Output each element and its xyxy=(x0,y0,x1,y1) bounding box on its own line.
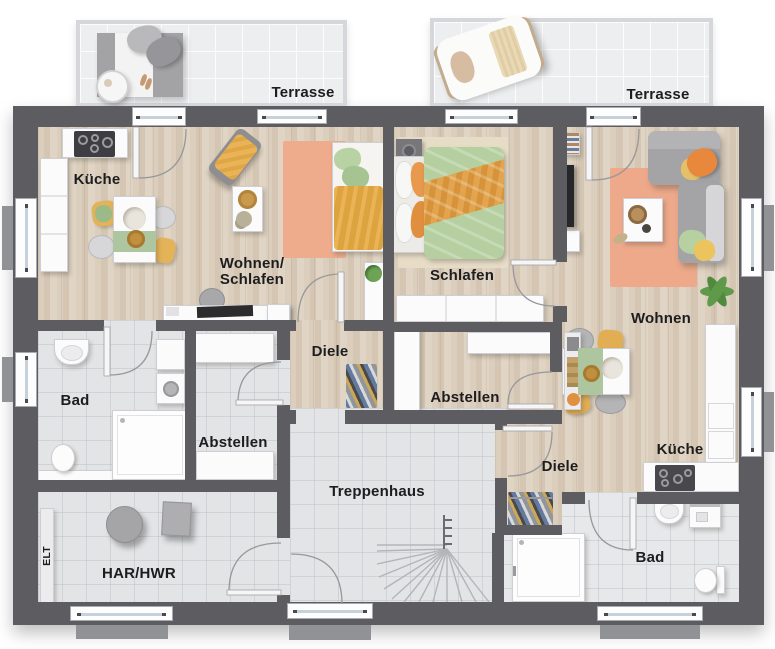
wall xyxy=(345,410,562,424)
washer-door xyxy=(163,381,179,397)
burner xyxy=(661,479,669,487)
room-label-wohnen: Wohnen xyxy=(631,311,691,327)
wall xyxy=(394,322,553,332)
hvac-unit xyxy=(161,501,192,536)
flower-bouquet xyxy=(123,207,146,230)
wardrobe-abstellen-left xyxy=(193,333,274,363)
room-label-abstellen-right: Abstellen xyxy=(430,390,499,406)
palm-plant xyxy=(698,272,738,312)
fruit-bowl xyxy=(583,365,600,382)
glass xyxy=(262,116,322,119)
window-sill xyxy=(2,357,13,402)
glass xyxy=(293,610,367,613)
room-label-kueche-right: Küche xyxy=(657,442,704,458)
potted-plant xyxy=(365,265,382,282)
room-label-kueche-left: Küche xyxy=(74,172,121,188)
washing-machine-left xyxy=(156,373,185,404)
glass xyxy=(751,392,754,452)
burner xyxy=(684,469,692,477)
glass xyxy=(77,613,166,616)
basin xyxy=(660,504,679,519)
cabinet-abstellen-right xyxy=(394,327,420,412)
exterior-wall xyxy=(13,106,764,127)
wall xyxy=(277,492,290,538)
label-line-1: Wohnen/ xyxy=(220,256,284,272)
wall xyxy=(185,331,196,480)
chaise-lounge xyxy=(206,128,266,186)
toilet-tank-right xyxy=(716,566,725,594)
room-label-terrasse-left: Terrasse xyxy=(271,85,334,101)
shoe-rack-left xyxy=(346,364,377,408)
cabinet-abstellen-left xyxy=(196,451,274,480)
window-sill xyxy=(764,205,774,271)
flower-bouquet xyxy=(601,357,623,379)
wall xyxy=(38,480,290,492)
wall xyxy=(637,492,739,504)
fruit-bowl xyxy=(127,230,145,248)
burner xyxy=(673,474,683,484)
terrace-cup xyxy=(104,79,112,87)
coat-rail xyxy=(509,497,552,499)
cooktop-right xyxy=(655,465,695,491)
window-top-left xyxy=(257,109,327,124)
cabinet-door xyxy=(708,403,734,429)
dining-chair-oval xyxy=(88,235,115,259)
room-label-elt: ELT xyxy=(39,546,55,566)
wall xyxy=(277,331,290,360)
room-label-schlafen: Schlafen xyxy=(430,268,494,284)
room-label-diele-right: Diele xyxy=(542,459,579,475)
shower-tray xyxy=(517,538,580,597)
burner xyxy=(78,135,88,145)
cooktop-left xyxy=(74,131,115,157)
shower-handle xyxy=(513,566,516,576)
laptop xyxy=(197,305,253,318)
shower-drain xyxy=(120,418,125,423)
terrace-tray-table xyxy=(96,70,129,103)
boiler-tank xyxy=(106,506,143,543)
room-label-bad-right: Bad xyxy=(636,550,665,566)
entrance-step xyxy=(289,625,371,640)
wall xyxy=(383,127,394,422)
window-schlafen xyxy=(445,109,518,124)
shower-right xyxy=(512,533,585,602)
room-label-har-hwr: HAR/HWR xyxy=(102,566,176,582)
shower-tray xyxy=(117,415,183,475)
sofa-back xyxy=(648,131,720,149)
entrance-door-unit xyxy=(287,603,373,619)
room-label-diele-left: Diele xyxy=(312,344,349,360)
floor-plan: Terrasse Terrasse Küche Wohnen/ Schlafen… xyxy=(0,0,775,649)
burner xyxy=(102,137,113,148)
wall xyxy=(344,320,383,331)
window-sill xyxy=(764,392,774,452)
cabinet-door xyxy=(708,431,734,459)
bed-duvet-green xyxy=(424,147,504,259)
room-label-bad-left: Bad xyxy=(61,393,90,409)
wall xyxy=(277,595,290,602)
toilet-right xyxy=(694,568,717,593)
wall xyxy=(562,492,585,504)
room-label-wohnen-schlafen: Wohnen/ Schlafen xyxy=(220,256,284,288)
floor-treppenhaus xyxy=(290,408,507,602)
room-label-treppenhaus: Treppenhaus xyxy=(329,484,425,500)
terrace-door-left xyxy=(132,107,186,126)
glass xyxy=(25,356,28,403)
gold-tray xyxy=(238,190,257,209)
desk-items xyxy=(166,307,179,316)
glass xyxy=(604,613,696,616)
burner xyxy=(659,469,668,478)
window-kueche-left xyxy=(15,198,37,278)
shower-left xyxy=(112,410,188,480)
wall xyxy=(156,320,296,331)
window-kueche-right xyxy=(741,387,762,457)
dresser-schlafen xyxy=(396,295,544,322)
chair-cushion-green xyxy=(94,204,113,223)
dried-plant xyxy=(236,211,252,227)
exterior-wall xyxy=(740,106,764,625)
window-sill xyxy=(600,625,700,639)
glass xyxy=(450,116,513,119)
room-label-abstellen-left: Abstellen xyxy=(198,435,267,451)
kitchen-counter-side-left xyxy=(40,158,68,272)
wall xyxy=(495,424,507,430)
glass xyxy=(751,204,754,272)
window-sill xyxy=(2,206,13,270)
window-har xyxy=(70,606,173,621)
wall xyxy=(38,320,104,331)
burner xyxy=(90,144,99,153)
coffee-cup xyxy=(642,224,651,233)
wall xyxy=(285,410,296,424)
toilet-left xyxy=(51,444,75,472)
window-bad-left xyxy=(15,352,37,407)
wall xyxy=(550,322,562,372)
kitchen-tall-unit-right xyxy=(705,324,736,463)
room-label-terrasse-right: Terrasse xyxy=(626,87,689,103)
terrace-door-right xyxy=(586,107,641,126)
glass xyxy=(590,116,637,119)
coffee-tray xyxy=(628,205,647,224)
duvet-folds xyxy=(424,147,504,259)
label-line-2: Schlafen xyxy=(220,272,284,288)
shower-drain xyxy=(519,540,524,545)
wall xyxy=(553,127,567,262)
daybed-throw-yellow xyxy=(334,186,383,250)
window-bad-right xyxy=(597,606,703,621)
window-wohnen-right xyxy=(741,198,762,277)
glass xyxy=(136,116,182,119)
wall xyxy=(492,533,504,602)
glass xyxy=(25,204,28,273)
basin xyxy=(61,345,83,361)
bath-cabinet xyxy=(156,339,185,370)
window-sill xyxy=(76,625,168,639)
burner xyxy=(91,134,99,142)
washer-drawer xyxy=(696,512,708,522)
wall xyxy=(553,306,567,322)
wall xyxy=(495,525,562,535)
shelf-abstellen-right xyxy=(467,332,553,354)
